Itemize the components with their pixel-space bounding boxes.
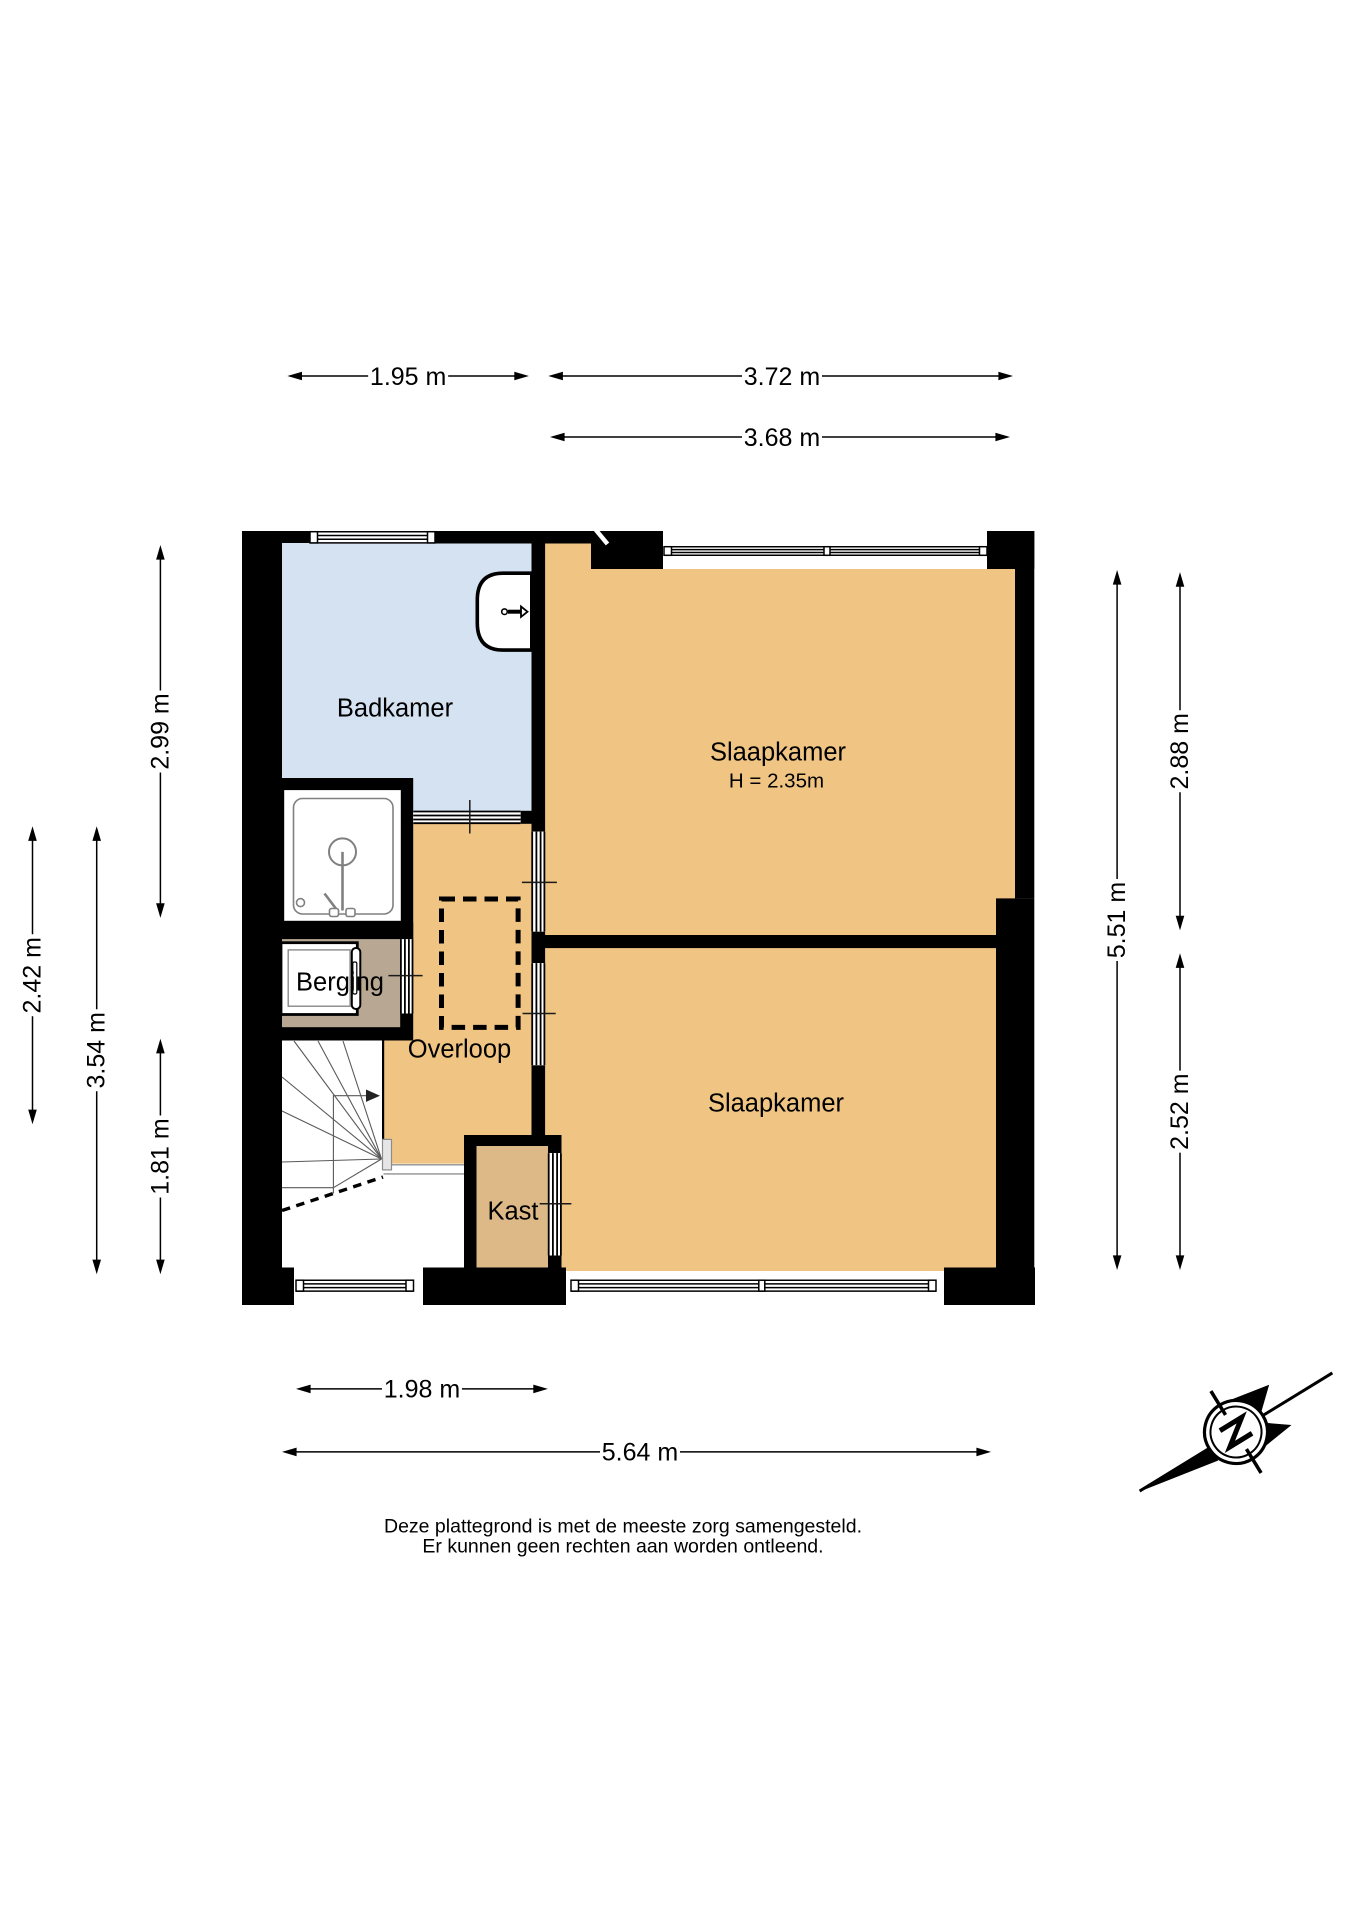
svg-text:Berging: Berging [296,969,384,997]
svg-text:Overloop: Overloop [408,1036,511,1064]
svg-text:2.88 m: 2.88 m [1166,713,1194,789]
svg-text:5.64 m: 5.64 m [602,1439,678,1467]
svg-text:3.68 m: 3.68 m [744,424,820,452]
svg-text:3.72 m: 3.72 m [744,363,820,391]
svg-text:Badkamer: Badkamer [337,695,454,723]
svg-text:1.95 m: 1.95 m [370,363,446,391]
svg-text:2.99 m: 2.99 m [146,693,174,769]
svg-text:Deze plattegrond is met de mee: Deze plattegrond is met de meeste zorg s… [384,1516,862,1538]
svg-text:Slaapkamer: Slaapkamer [708,1090,845,1118]
svg-text:Kast: Kast [487,1198,538,1226]
svg-text:2.52 m: 2.52 m [1166,1073,1194,1149]
svg-text:3.54 m: 3.54 m [83,1012,111,1088]
svg-text:1.81 m: 1.81 m [146,1118,174,1194]
svg-text:5.51 m: 5.51 m [1103,882,1131,958]
svg-text:Slaapkamer: Slaapkamer [710,739,847,767]
svg-text:Er kunnen geen rechten aan wor: Er kunnen geen rechten aan worden ontlee… [422,1536,823,1558]
svg-text:1.98 m: 1.98 m [384,1376,460,1404]
svg-text:H = 2.35m: H = 2.35m [729,770,824,793]
svg-text:2.42 m: 2.42 m [19,937,47,1013]
